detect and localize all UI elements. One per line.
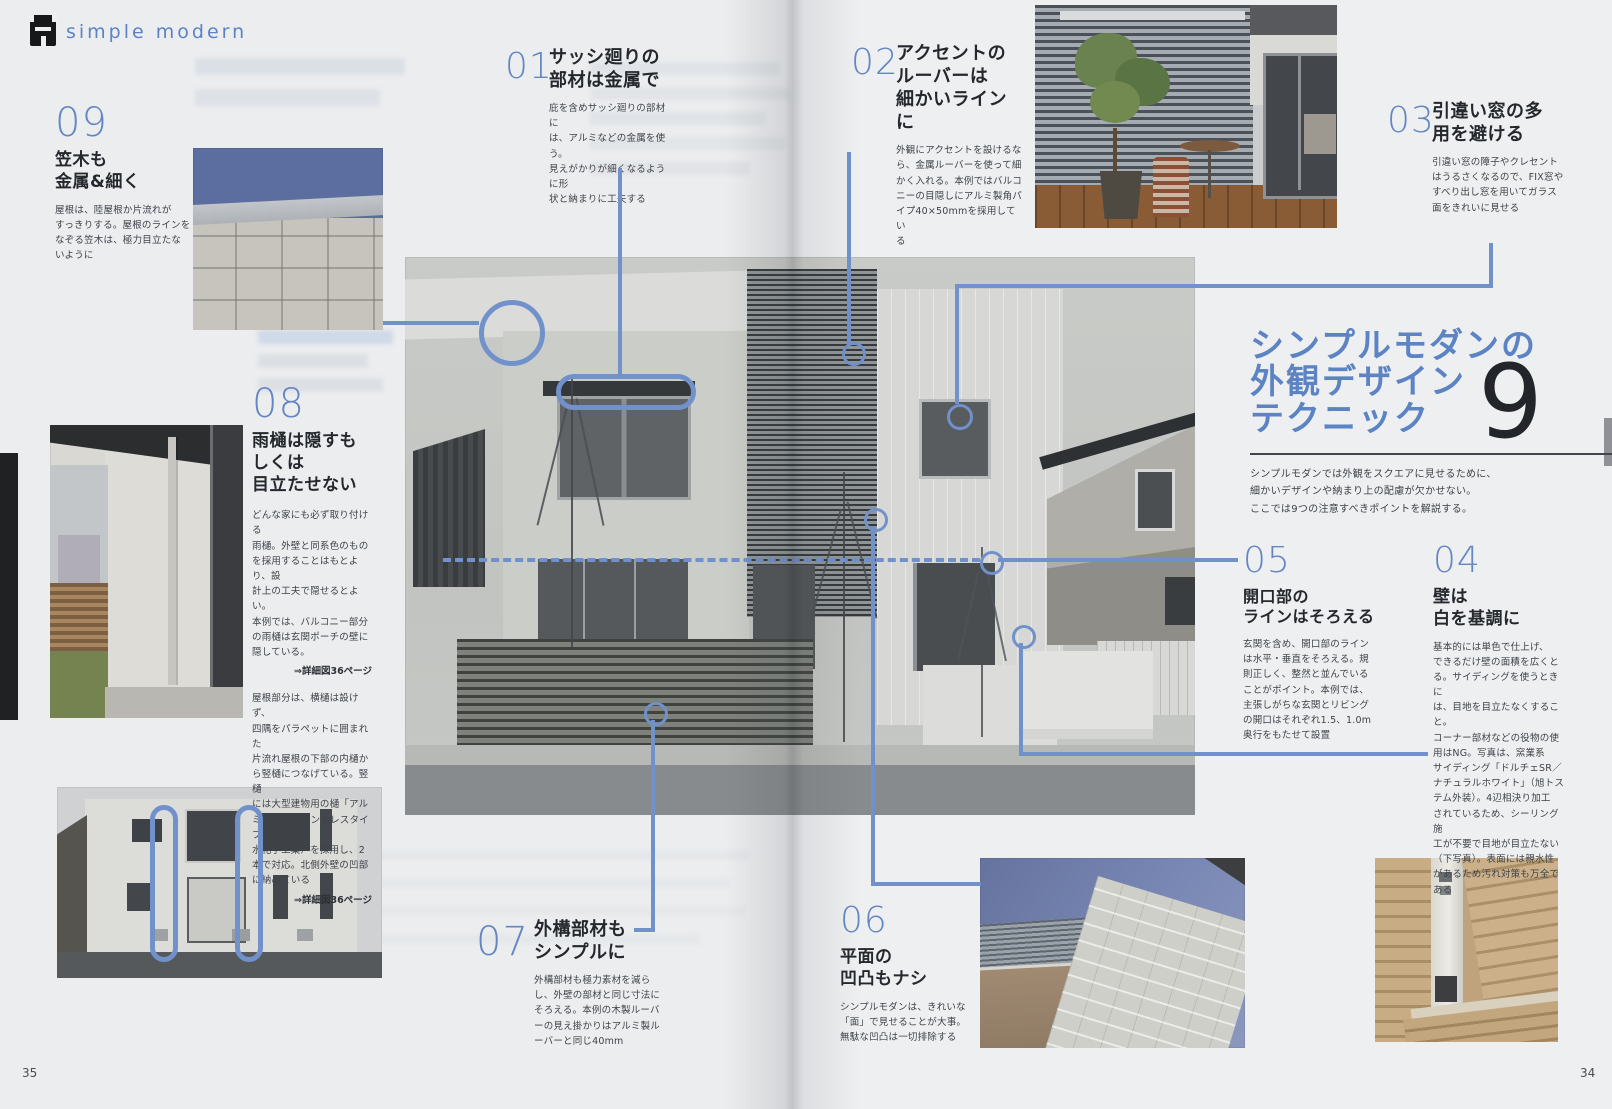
sidewalk bbox=[405, 745, 1195, 767]
callout-line-03 bbox=[955, 284, 1493, 288]
tip-08-body: どんな家にも必ず取り付ける 雨樋。外壁と同系色のもの を採用することはもとより、… bbox=[252, 508, 372, 660]
callout-line-06 bbox=[871, 882, 981, 886]
tip-08-body2: 屋根部分は、横樋は設けず、 四隅をパラペットに囲まれた 片流れ屋根の下部の内樋か… bbox=[252, 691, 372, 888]
callout-line-05 bbox=[998, 558, 1238, 562]
opening-alignment-dashed-line bbox=[443, 558, 980, 562]
tip-05-heading: 開口部の ラインはそろえる bbox=[1243, 587, 1375, 628]
tip-07-body: 外構部材も極力素材を減ら し、外壁の部材と同じ寸法に そろえる。本例の木製ルーバ… bbox=[534, 973, 666, 1049]
side-garage bbox=[413, 429, 485, 587]
callout-ring-05 bbox=[980, 551, 1004, 575]
porch-floor bbox=[105, 687, 243, 718]
wood-louver-fence bbox=[457, 639, 813, 747]
tip-08-heading: 雨樋は隠すも しくは 目立たせない bbox=[252, 431, 372, 496]
feature-count: 9 bbox=[1478, 352, 1543, 454]
tip-01-heading: サッシ廻りの 部材は金属で bbox=[549, 46, 673, 92]
brand-title: simple modern bbox=[66, 21, 247, 43]
flat-plane-photo bbox=[980, 858, 1245, 1048]
tip-08-note2: ⇒詳細図36ページ bbox=[252, 892, 372, 906]
bleedthrough-ghost bbox=[195, 58, 420, 142]
callout-line-07 bbox=[651, 720, 655, 932]
callout-line-04 bbox=[1019, 752, 1428, 756]
tip-03-number: 03 bbox=[1387, 103, 1432, 216]
callout-line-07 bbox=[634, 928, 655, 932]
road bbox=[405, 765, 1195, 815]
callout-line-02 bbox=[847, 152, 851, 344]
tip-09: 09 笠木も 金属&細く 屋根は、陸屋根か片流れが すっきりする。屋根のラインを… bbox=[55, 103, 195, 263]
callout-stadium-01 bbox=[556, 374, 696, 410]
roof-sliver bbox=[1185, 858, 1245, 892]
tip-03: 03 引違い窓の多 用を避ける 引違い窓の障子やクレセント はうるさくなるので、… bbox=[1387, 100, 1567, 216]
tip-08: 08 雨樋は隠すも しくは 目立たせない どんな家にも必ず取り付ける 雨樋。外壁… bbox=[252, 384, 372, 906]
tip-02: 02 アクセントの ルーバーは 細かいラインに 外観にアクセントを設けるな ら、… bbox=[851, 42, 1023, 249]
balcony-photo bbox=[1035, 5, 1337, 228]
bistro-table bbox=[1180, 140, 1240, 200]
tip-09-body: 屋根は、陸屋根か片流れが すっきりする。屋根のラインを なぞる笠木は、極力目立た… bbox=[55, 203, 195, 264]
feature-intro: シンプルモダンでは外観をスクエアに見せるために、 細かいデザインや納まり上の配慮… bbox=[1250, 466, 1580, 518]
tip-04-body: 基本的には単色で仕上げ、 できるだけ壁の面積を広くと る。サイディングを使うとき… bbox=[1433, 640, 1568, 898]
downpipe-highlight bbox=[235, 805, 263, 962]
tiled-wall bbox=[193, 218, 383, 330]
tree bbox=[543, 377, 603, 647]
tip-01-number: 01 bbox=[505, 49, 549, 207]
callout-ring-09 bbox=[479, 300, 545, 366]
feature-title: シンプルモダンの 外観デザイン テクニック bbox=[1250, 328, 1612, 437]
title-rule bbox=[1250, 453, 1612, 455]
tip-01-body: 庇を含めサッシ廻りの部材に は、アルミなどの金属を使う。 見えがかりが細くなるよ… bbox=[549, 101, 673, 207]
tip-07: 07 外構部材も シンプルに 外構部材も極力素材を減ら し、外壁の部材と同じ寸法… bbox=[476, 918, 666, 1049]
scan-edge-artifact bbox=[1604, 418, 1612, 466]
planter-box bbox=[1023, 651, 1153, 739]
tip-05: 05 開口部の ラインはそろえる 玄関を含め、開口部のライン は水平・垂直をそろ… bbox=[1243, 543, 1375, 743]
callout-line-09 bbox=[383, 321, 479, 325]
garden-view bbox=[50, 465, 108, 718]
tip-02-body: 外観にアクセントを設けるな ら、金属ルーバーを使って細 かく入れる。本例ではバル… bbox=[896, 143, 1023, 249]
tip-06: 06 平面の 凹凸もナシ シンプルモダンは、きれいな 「面」で見せることが大事。… bbox=[840, 903, 988, 1045]
tip-07-heading: 外構部材も シンプルに bbox=[534, 918, 666, 964]
tree bbox=[961, 547, 1005, 737]
page-number-right: 34 bbox=[1580, 1066, 1595, 1080]
feature-title-block: シンプルモダンの 外観デザイン テクニック 9 シンプルモダンでは外観をスクエア… bbox=[1250, 328, 1612, 518]
downpipe-highlight bbox=[150, 805, 178, 962]
callout-ring-04 bbox=[1012, 625, 1036, 649]
callout-ring-02 bbox=[842, 342, 866, 366]
callout-line-03 bbox=[1489, 243, 1493, 288]
tip-02-heading: アクセントの ルーバーは 細かいラインに bbox=[896, 42, 1023, 134]
page-number-left: 35 bbox=[22, 1066, 37, 1080]
callout-line-06 bbox=[871, 526, 875, 886]
callout-ring-03 bbox=[947, 404, 973, 430]
tip-09-number: 09 bbox=[55, 103, 195, 143]
porch-wall bbox=[105, 445, 210, 695]
callout-line-03 bbox=[955, 284, 959, 404]
tip-03-heading: 引違い窓の多 用を避ける bbox=[1432, 100, 1567, 146]
tip-04-number: 04 bbox=[1433, 543, 1568, 579]
magazine-spread: simple modern bbox=[0, 0, 1612, 1109]
tree bbox=[817, 472, 873, 742]
tip-04: 04 壁は 白を基調に 基本的には単色で仕上げ、 できるだけ壁の面積を広くと る… bbox=[1433, 543, 1568, 898]
downpipe bbox=[168, 437, 176, 685]
deck-chair bbox=[1153, 157, 1189, 217]
tip-06-number: 06 bbox=[840, 903, 988, 939]
porch-door bbox=[210, 425, 243, 697]
callout-ring-06 bbox=[864, 508, 888, 532]
page-edge-photo-sliver bbox=[0, 453, 18, 720]
coping-closeup-photo bbox=[193, 148, 383, 330]
tip-09-heading: 笠木も 金属&細く bbox=[55, 150, 195, 194]
tip-05-number: 05 bbox=[1243, 543, 1375, 579]
tip-04-heading: 壁は 白を基調に bbox=[1433, 587, 1568, 631]
tip-06-body: シンプルモダンは、きれいな 「面」で見せることが大事。 無駄な凹凸は一切排除する bbox=[840, 1000, 988, 1046]
callout-line-04 bbox=[1019, 643, 1023, 756]
tip-02-number: 02 bbox=[851, 45, 896, 249]
tip-07-number: 07 bbox=[476, 922, 534, 1049]
tip-08-number: 08 bbox=[252, 384, 372, 424]
callout-line-01 bbox=[618, 168, 622, 376]
tip-03-body: 引違い窓の障子やクレセント はうるさくなるので、FIX窓や すべり出し窓を用いて… bbox=[1432, 155, 1567, 216]
porch-photo bbox=[50, 425, 243, 718]
tip-06-heading: 平面の 凹凸もナシ bbox=[840, 947, 988, 991]
brand-logo-icon bbox=[30, 15, 56, 46]
tip-05-body: 玄関を含め、開口部のライン は水平・垂直をそろえる。規 則正しく、整然と並んでい… bbox=[1243, 637, 1375, 743]
sliding-door bbox=[1263, 53, 1337, 199]
callout-ring-07 bbox=[644, 702, 668, 726]
tip-01: 01 サッシ廻りの 部材は金属で 庇を含めサッシ廻りの部材に は、アルミなどの金… bbox=[505, 46, 673, 207]
ground bbox=[57, 952, 382, 978]
rear-parapet-band bbox=[405, 270, 753, 339]
tip-08-note: ⇒詳細図36ページ bbox=[252, 663, 372, 677]
